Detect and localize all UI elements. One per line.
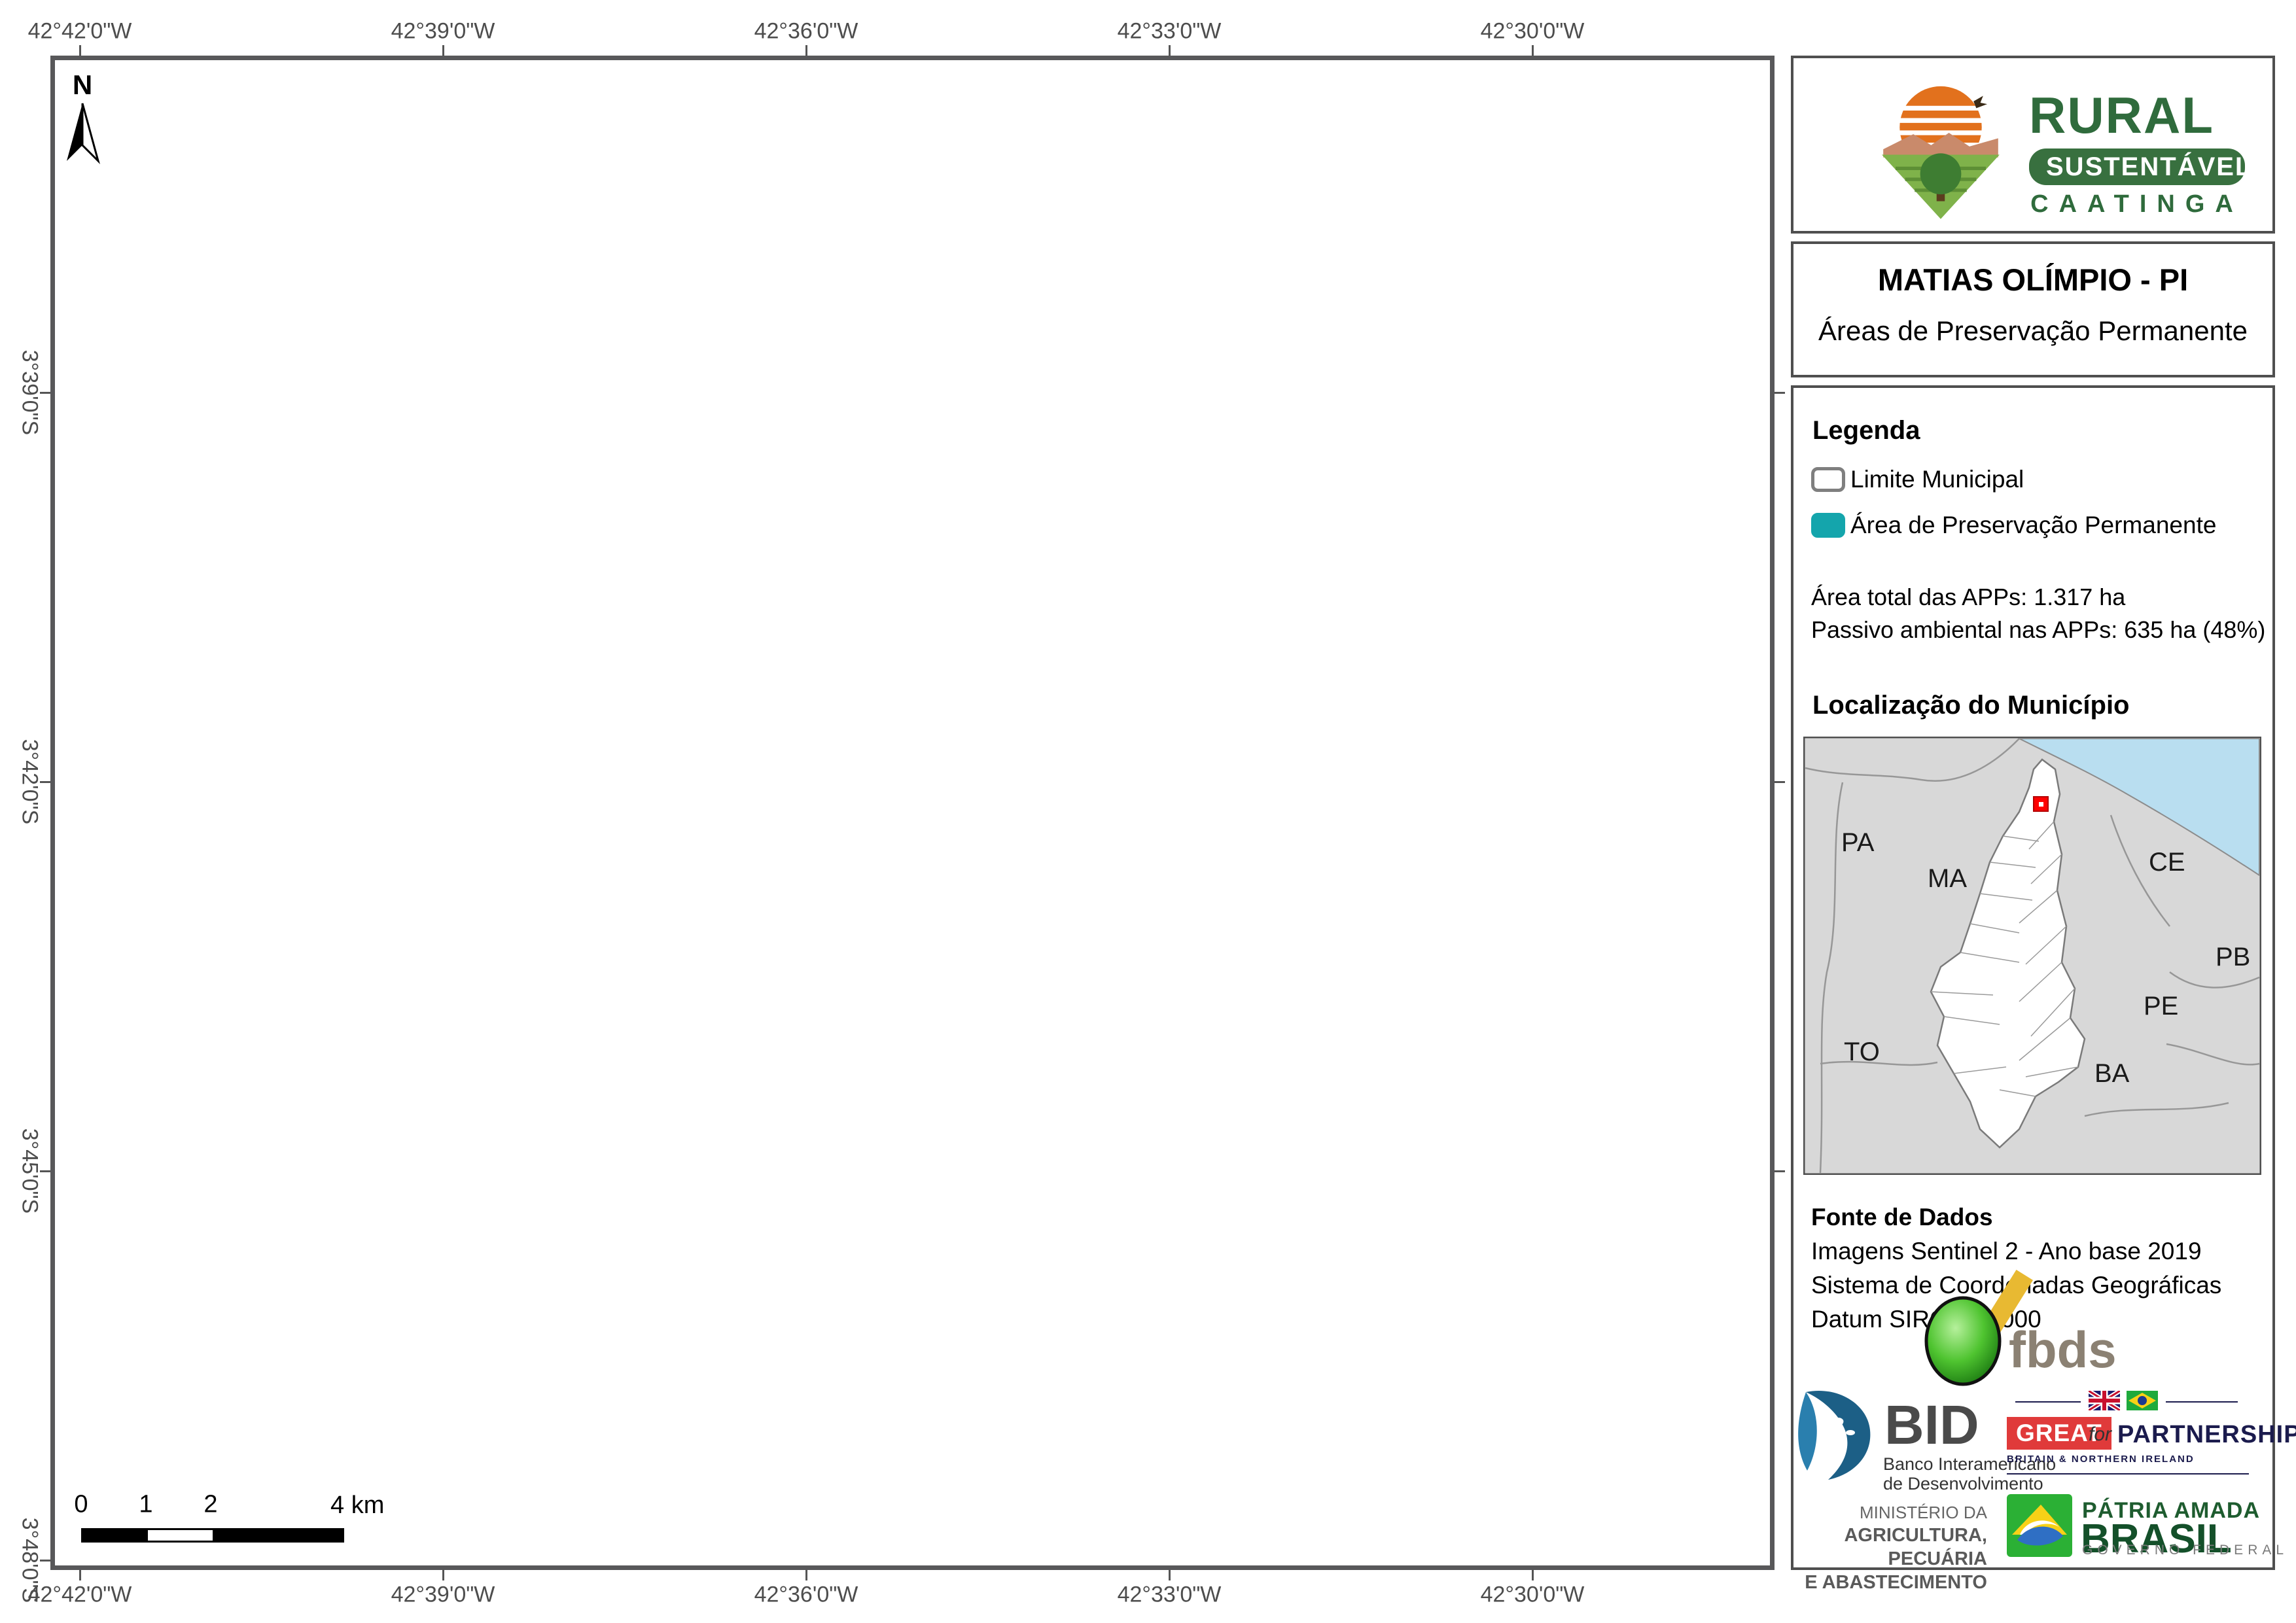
brand-tagline: CAATINGA xyxy=(2029,192,2245,217)
tick xyxy=(1169,45,1171,56)
ministry-block: MINISTÉRIO DA AGRICULTURA, PECUÁRIA E AB… xyxy=(1791,1502,1987,1594)
legend-item-app: Área de Preservação Permanente xyxy=(1811,512,2216,539)
state-label-pa: PA xyxy=(1841,828,1875,857)
scalebar xyxy=(81,1528,344,1543)
tick xyxy=(1775,392,1785,394)
coord-bottom-2: 42°36'0"W xyxy=(754,1582,858,1608)
great-rule-right xyxy=(2166,1401,2238,1403)
great-subtext: BRITAIN & NORTHERN IRELAND xyxy=(2007,1454,2195,1465)
brand-title: RURAL xyxy=(2029,90,2245,141)
scalebar-seg xyxy=(83,1530,148,1541)
bid-wordmark: BID xyxy=(1884,1397,1979,1452)
tick xyxy=(40,1170,50,1172)
stat-total-apps: Área total das APPs: 1.317 ha xyxy=(1811,584,2125,611)
map-subtitle: Áreas de Preservação Permanente xyxy=(1791,315,2275,347)
state-label-ba: BA xyxy=(2094,1059,2130,1088)
tick xyxy=(1532,1570,1534,1580)
state-label-ma: MA xyxy=(1928,864,1967,893)
coord-top-4: 42°30'0"W xyxy=(1481,19,1585,44)
tick xyxy=(40,1560,50,1562)
fbds-sphere-icon xyxy=(1926,1298,2000,1384)
rural-sustentavel-logo-icon xyxy=(1865,73,2016,223)
scalebar-4km: 4 km xyxy=(330,1492,384,1520)
brazil-flag-icon xyxy=(2127,1391,2158,1410)
tick xyxy=(79,45,81,56)
state-label-pe: PE xyxy=(2144,992,2178,1021)
scalebar-seg xyxy=(213,1530,342,1541)
location-heading: Localização do Município xyxy=(1812,691,2130,720)
ministry-line2: AGRICULTURA, PECUÁRIA xyxy=(1791,1524,1987,1571)
coord-left-0: 3°39'0"S xyxy=(17,350,43,435)
coord-left-2: 3°45'0"S xyxy=(17,1128,43,1213)
coord-top-0: 42°42'0"W xyxy=(28,19,132,44)
scalebar-1: 1 xyxy=(139,1491,152,1519)
tick xyxy=(442,1570,444,1580)
ministry-line1: MINISTÉRIO DA xyxy=(1791,1502,1987,1524)
great-for: for xyxy=(2089,1423,2111,1446)
bid-subtitle-2: de Desenvolvimento xyxy=(1883,1473,2043,1494)
brasil-line3: GOVERNO FEDERAL xyxy=(2082,1543,2288,1558)
state-label-pb: PB xyxy=(2216,943,2250,971)
coord-bottom-3: 42°33'0"W xyxy=(1118,1582,1222,1608)
coord-top-1: 42°39'0"W xyxy=(391,19,495,44)
source-heading: Fonte de Dados xyxy=(1811,1204,1993,1231)
brand-box: RURAL SUSTENTÁVEL CAATINGA xyxy=(1791,56,2275,234)
tick xyxy=(442,45,444,56)
tick xyxy=(40,781,50,783)
state-label-ce: CE xyxy=(2149,848,2185,877)
map-frame xyxy=(50,56,1775,1570)
tick xyxy=(1169,1570,1171,1580)
coord-bottom-0: 42°42'0"W xyxy=(28,1582,132,1608)
state-label-to: TO xyxy=(1844,1038,1880,1066)
brasil-flag-logo-icon xyxy=(2007,1494,2072,1557)
fbds-logo: fbds xyxy=(1911,1263,2251,1400)
map-title: MATIAS OLÍMPIO - PI xyxy=(1791,262,2275,298)
legend-item-limite-label: Limite Municipal xyxy=(1850,466,2024,493)
north-arrow: N xyxy=(63,69,102,169)
fbds-wordmark: fbds xyxy=(2009,1321,2117,1378)
coord-bottom-1: 42°39'0"W xyxy=(391,1582,495,1608)
scalebar-2: 2 xyxy=(203,1491,217,1519)
great-partnership: PARTNERSHIP xyxy=(2117,1421,2296,1449)
scalebar-seg xyxy=(148,1530,213,1541)
coord-left-1: 3°42'0"S xyxy=(17,739,43,824)
tick xyxy=(1775,781,1785,783)
source-line1: Imagens Sentinel 2 - Ano base 2019 xyxy=(1811,1238,2202,1265)
legend-heading: Legenda xyxy=(1812,416,1920,445)
great-rule-left xyxy=(2015,1401,2081,1403)
tick xyxy=(1775,1170,1785,1172)
app-swatch xyxy=(1811,513,1845,538)
coord-top-2: 42°36'0"W xyxy=(754,19,858,44)
coord-top-3: 42°33'0"W xyxy=(1118,19,1222,44)
uk-flag-icon xyxy=(2089,1391,2120,1410)
map-layout-page: MILAGRES DO MARANHÃO MADEIRO LUZILÂNDIA … xyxy=(0,0,2296,1623)
tick xyxy=(40,392,50,394)
tick xyxy=(79,1570,81,1580)
ministry-line3: E ABASTECIMENTO xyxy=(1791,1571,1987,1594)
limite-municipal-swatch xyxy=(1811,467,1845,492)
tick xyxy=(805,1570,807,1580)
coord-bottom-4: 42°30'0"W xyxy=(1481,1582,1585,1608)
north-label: N xyxy=(63,69,102,101)
legend-item-app-label: Área de Preservação Permanente xyxy=(1850,512,2216,539)
brand-subtitle: SUSTENTÁVEL xyxy=(2029,148,2245,185)
scalebar-0: 0 xyxy=(74,1491,88,1519)
stat-passivo-apps: Passivo ambiental nas APPs: 635 ha (48%) xyxy=(1811,616,2265,644)
legend-item-limite: Limite Municipal xyxy=(1811,466,2024,493)
tick xyxy=(1532,45,1534,56)
coord-left-3: 3°48'0"S xyxy=(17,1518,43,1603)
tick xyxy=(805,45,807,56)
north-arrow-icon xyxy=(63,101,102,166)
great-divider xyxy=(2007,1473,2249,1475)
bid-logo-icon xyxy=(1794,1387,1879,1482)
location-inset-map: PA MA TO CE PB PE BA xyxy=(1803,737,2261,1175)
